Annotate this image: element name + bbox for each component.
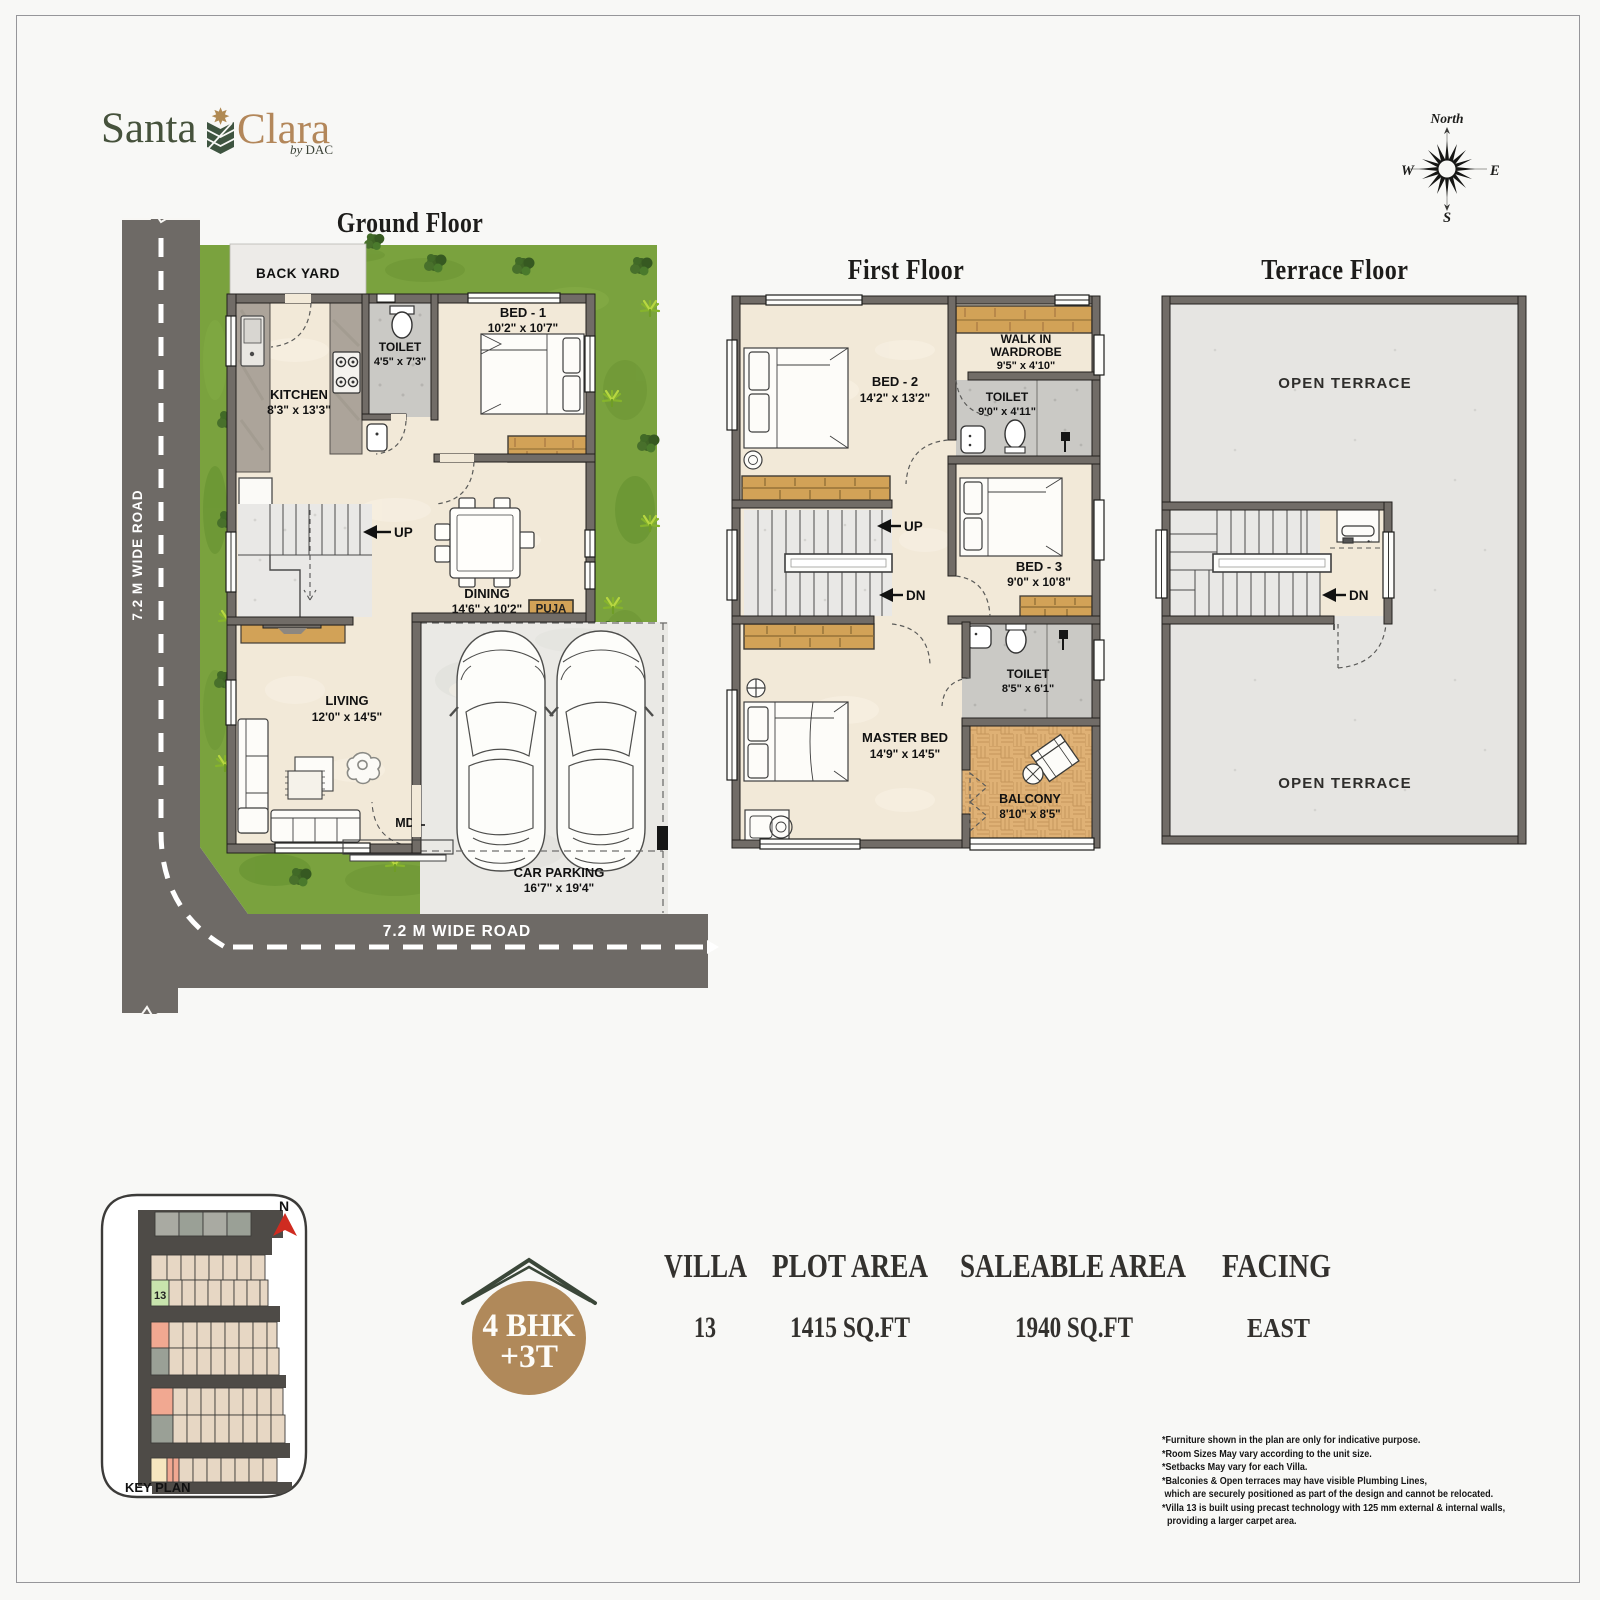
svg-text:N: N bbox=[279, 1198, 289, 1214]
svg-text:CAR PARKING: CAR PARKING bbox=[514, 865, 605, 880]
svg-text:1415 SQ.FT: 1415 SQ.FT bbox=[790, 1311, 910, 1344]
svg-text:E: E bbox=[1489, 163, 1500, 179]
svg-text:Santa: Santa bbox=[101, 105, 197, 152]
svg-text:LIVING: LIVING bbox=[325, 693, 368, 708]
svg-text:BACK YARD: BACK YARD bbox=[256, 266, 340, 281]
svg-text:TOILET: TOILET bbox=[1007, 667, 1050, 681]
svg-text:12'0" x 14'5": 12'0" x 14'5" bbox=[312, 710, 382, 724]
svg-text:9'0" x 10'8": 9'0" x 10'8" bbox=[1007, 575, 1071, 589]
svg-text:by DAC: by DAC bbox=[290, 142, 333, 157]
svg-text:9'5" x 4'10": 9'5" x 4'10" bbox=[997, 360, 1055, 372]
svg-text:10'2" x 10'7": 10'2" x 10'7" bbox=[488, 321, 558, 335]
svg-text:PLOT AREA: PLOT AREA bbox=[772, 1248, 928, 1285]
svg-text:BED - 1: BED - 1 bbox=[500, 305, 546, 320]
svg-text:WARDROBE: WARDROBE bbox=[990, 345, 1061, 359]
svg-text:KITCHEN: KITCHEN bbox=[270, 387, 328, 402]
svg-text:7.2 M WIDE ROAD: 7.2 M WIDE ROAD bbox=[130, 489, 145, 620]
svg-text:UP: UP bbox=[904, 519, 923, 534]
svg-text:+3T: +3T bbox=[500, 1339, 558, 1375]
svg-text:North: North bbox=[1429, 111, 1463, 126]
svg-text:●◦: ●◦ bbox=[1367, 539, 1372, 545]
svg-text:DN: DN bbox=[1349, 588, 1369, 603]
svg-text:8'3" x 13'3": 8'3" x 13'3" bbox=[267, 403, 331, 417]
svg-text:FACING: FACING bbox=[1222, 1248, 1331, 1285]
svg-text:EAST: EAST bbox=[1247, 1313, 1310, 1343]
svg-text:VILLA: VILLA bbox=[664, 1248, 747, 1285]
svg-text:8'5" x 6'1": 8'5" x 6'1" bbox=[1002, 683, 1054, 695]
svg-text:BED - 2: BED - 2 bbox=[872, 374, 918, 389]
svg-text:BED - 3: BED - 3 bbox=[1016, 559, 1062, 574]
svg-text:4'5" x 7'3": 4'5" x 7'3" bbox=[374, 356, 426, 368]
svg-text:W: W bbox=[1401, 163, 1415, 179]
svg-text:8'10" x 8'5": 8'10" x 8'5" bbox=[999, 809, 1060, 821]
svg-text:16'7" x 19'4": 16'7" x 19'4" bbox=[524, 881, 594, 895]
svg-text:OPEN TERRACE: OPEN TERRACE bbox=[1278, 375, 1412, 392]
svg-text:MASTER BED: MASTER BED bbox=[862, 730, 948, 745]
svg-text:DN: DN bbox=[906, 588, 926, 603]
svg-text:13: 13 bbox=[694, 1311, 716, 1344]
svg-text:KEY PLAN: KEY PLAN bbox=[125, 1480, 191, 1495]
svg-text:S: S bbox=[1443, 210, 1451, 225]
svg-text:SALEABLE AREA: SALEABLE AREA bbox=[960, 1248, 1186, 1285]
svg-text:1940 SQ.FT: 1940 SQ.FT bbox=[1015, 1311, 1133, 1344]
svg-text:OPEN TERRACE: OPEN TERRACE bbox=[1278, 775, 1412, 792]
svg-text:7.2 M WIDE ROAD: 7.2 M WIDE ROAD bbox=[383, 923, 531, 940]
svg-text:TOILET: TOILET bbox=[379, 340, 422, 354]
svg-text:UP: UP bbox=[394, 525, 413, 540]
svg-text:WALK IN: WALK IN bbox=[1001, 332, 1052, 346]
svg-text:9'0" x 4'11": 9'0" x 4'11" bbox=[978, 406, 1036, 418]
svg-text:14'9" x 14'5": 14'9" x 14'5" bbox=[870, 747, 940, 761]
svg-text:13: 13 bbox=[154, 1290, 166, 1302]
svg-text:14'2" x 13'2": 14'2" x 13'2" bbox=[860, 391, 930, 405]
svg-text:BALCONY: BALCONY bbox=[999, 792, 1061, 806]
svg-text:TOILET: TOILET bbox=[986, 390, 1029, 404]
svg-text:DINING: DINING bbox=[464, 586, 510, 601]
